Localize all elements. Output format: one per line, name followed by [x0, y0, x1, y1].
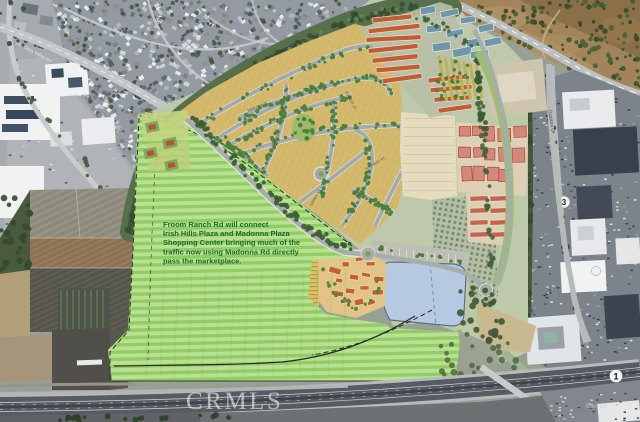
svg-text:CRMLS: CRMLS: [186, 388, 283, 415]
svg-text:3: 3: [562, 198, 567, 207]
svg-text:Elks Ln: Elks Ln: [586, 403, 608, 410]
svg-text:1: 1: [613, 372, 618, 382]
